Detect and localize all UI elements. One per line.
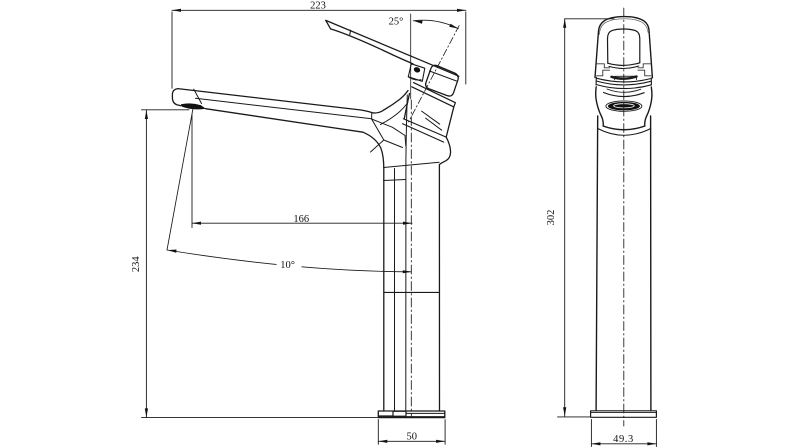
svg-text:50: 50 <box>406 431 417 442</box>
svg-text:49.3: 49.3 <box>613 434 634 445</box>
svg-text:166: 166 <box>293 214 309 225</box>
svg-text:25°: 25° <box>389 17 404 28</box>
svg-text:234: 234 <box>131 256 142 273</box>
svg-text:10°: 10° <box>280 260 295 271</box>
svg-text:223: 223 <box>310 1 326 12</box>
svg-text:302: 302 <box>546 210 557 226</box>
